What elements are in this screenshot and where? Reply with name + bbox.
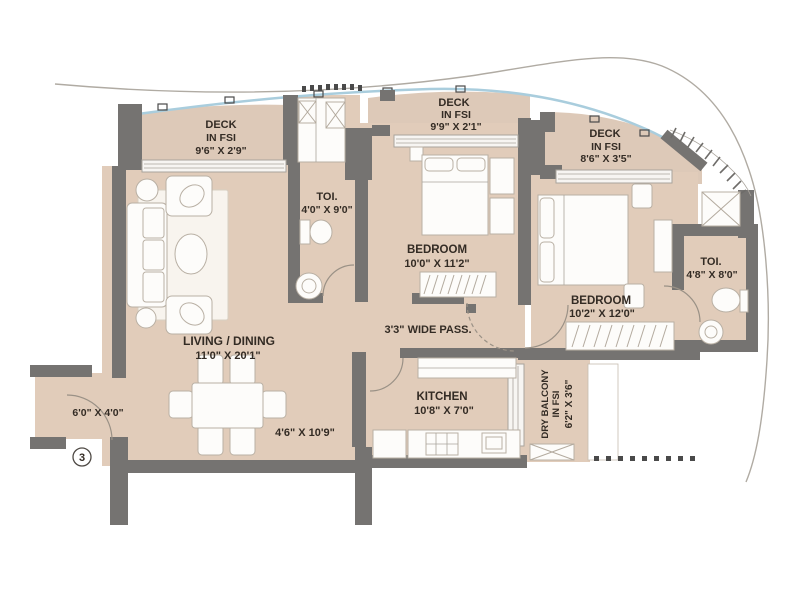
toilet-right-name: TOI.	[700, 256, 721, 268]
deck-left-dims: 9'6" X 2'9"	[195, 145, 246, 157]
bedside-unit	[490, 198, 514, 234]
floor-plan-page: DECK IN FSI 9'6" X 2'9" DECK IN FSI 9'9"…	[0, 0, 800, 600]
bedroom-left-dims: 10'0" X 11'2"	[404, 258, 469, 270]
wardrobe	[420, 272, 496, 297]
nightstand	[410, 147, 423, 161]
living-dining-dims: 11'0" X 20'1"	[195, 350, 260, 362]
toilet-left-dims: 4'0" X 9'0"	[301, 204, 352, 216]
dining-chair	[262, 391, 286, 418]
passage-dims: 4'6" X 10'9"	[275, 427, 335, 439]
unit-number-badge: 3	[73, 448, 91, 466]
side-table-top	[136, 179, 158, 201]
nightstand	[632, 184, 652, 208]
dry-balcony-dims: 6'2" X 3'6"	[564, 379, 575, 428]
dining-chair	[169, 391, 193, 418]
toilet-right-dims: 4'8" X 8'0"	[686, 269, 737, 281]
living-furniture	[127, 176, 228, 334]
deck-right-name: DECK	[589, 128, 620, 140]
dining-table	[192, 383, 263, 428]
deck-mid-fsi: IN FSI	[441, 109, 471, 121]
dresser	[654, 220, 672, 272]
kitchen-name: KITCHEN	[416, 391, 467, 403]
kitchen-counter-left	[373, 430, 406, 458]
bedroom-left-name: BEDROOM	[407, 244, 467, 256]
floor-plan-canvas: DECK IN FSI 9'6" X 2'9" DECK IN FSI 9'9"…	[0, 0, 800, 600]
foyer-floor	[35, 373, 115, 439]
dry-balcony-name: DRY BALCONY	[540, 369, 551, 439]
coffee-table	[175, 234, 207, 274]
deck-mid-name: DECK	[438, 97, 469, 109]
deck-left-fsi: IN FSI	[206, 132, 236, 144]
passage-name: 3'3" WIDE PASS.	[384, 324, 471, 336]
ledge	[588, 364, 618, 460]
toilet-left-name: TOI.	[316, 191, 337, 203]
wc-tank	[740, 290, 748, 312]
wc-tank	[300, 220, 310, 244]
dashed-projection-line	[594, 456, 695, 461]
wc-bowl	[310, 220, 332, 244]
kitchen-dims: 10'8" X 7'0"	[414, 405, 474, 417]
bedside-unit	[490, 158, 514, 194]
side-table-bottom	[136, 308, 156, 328]
deck-mid-dims: 9'9" X 2'1"	[430, 121, 481, 133]
bedroom-right-dims: 10'2" X 12'0"	[569, 308, 635, 320]
dining-chair	[198, 425, 223, 455]
deck-left-name: DECK	[205, 119, 236, 131]
deck-right-fsi: IN FSI	[591, 141, 621, 153]
baluster-row	[302, 84, 362, 92]
living-dining-name: LIVING / DINING	[183, 334, 275, 348]
unit-number: 3	[79, 452, 85, 464]
foyer-dims: 6'0" X 4'0"	[72, 407, 123, 419]
wc-bowl	[712, 288, 740, 312]
dining-chair	[230, 425, 255, 455]
dry-balcony-fsi: IN FSI	[551, 391, 562, 418]
deck-right-dims: 8'6" X 3'5"	[580, 153, 631, 165]
bedroom-right-name: BEDROOM	[571, 295, 631, 307]
